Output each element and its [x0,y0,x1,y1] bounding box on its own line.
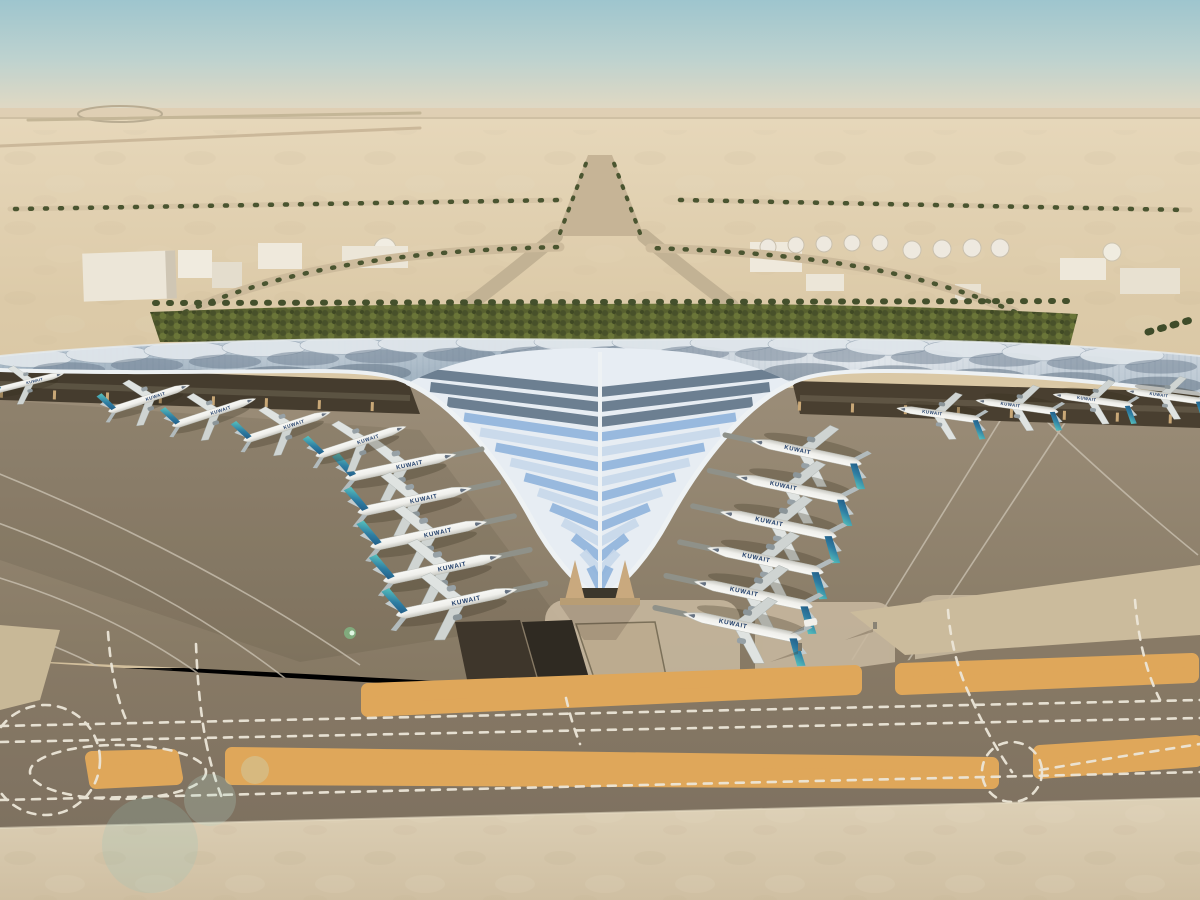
airport-aerial-rendering: Aerial rendering of a desert airport: tr… [0,0,1200,900]
building-right-4 [1120,268,1180,294]
rendering-canvas: Aerial rendering of a desert airport: tr… [0,0,1200,900]
dome-building-right [1103,243,1121,261]
hedge-garden [150,304,1078,345]
building-right-1 [806,274,844,291]
palm-row-front [155,301,1075,303]
building-right-3 [1060,258,1106,280]
